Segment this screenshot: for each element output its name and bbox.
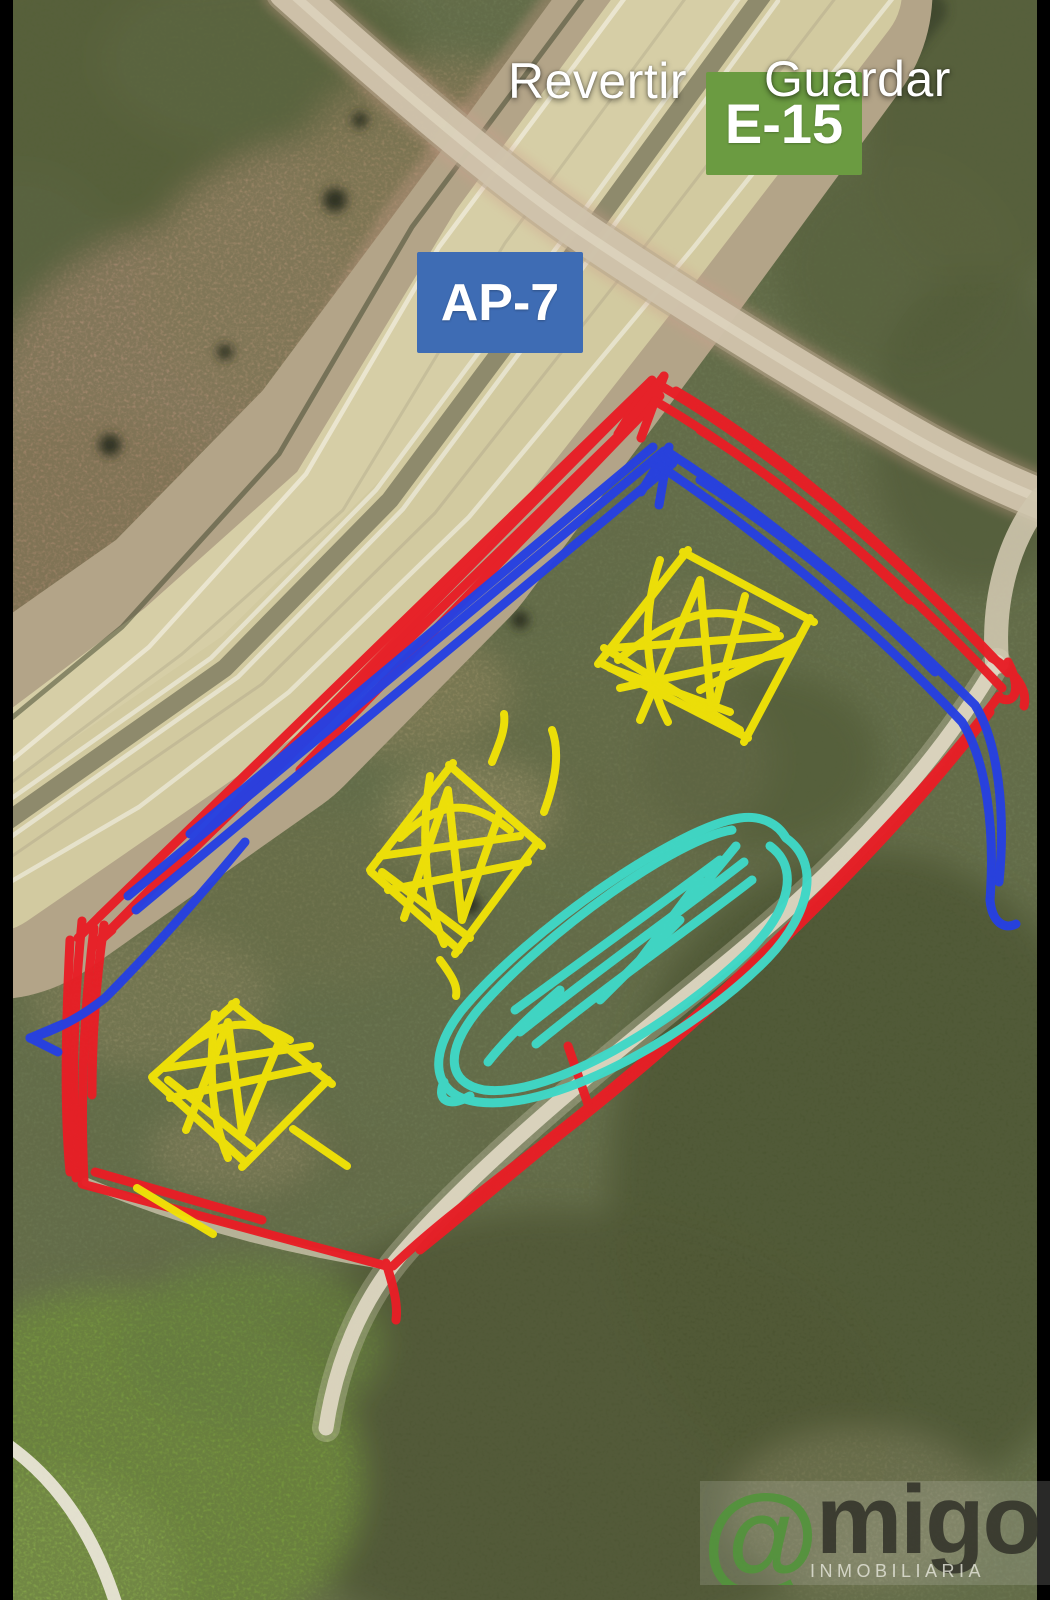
ap7-road-badge-label: AP-7 (441, 273, 559, 333)
map-annotation-screen: E-15 AP-7 Revertir Guardar @ migo INMOBI… (0, 0, 1050, 1600)
save-button[interactable]: Guardar (764, 50, 951, 108)
left-letterbox-bar (0, 0, 13, 1600)
watermark-subtitle: INMOBILIARIA (810, 1561, 985, 1582)
watermark-name: migo (816, 1481, 1040, 1571)
map-satellite-canvas[interactable] (0, 0, 1050, 1600)
revert-button[interactable]: Revertir (508, 52, 687, 110)
right-letterbox-bar (1037, 0, 1050, 1600)
ap7-road-badge: AP-7 (417, 252, 583, 353)
agency-watermark: @ migo INMOBILIARIA (700, 1481, 1050, 1585)
watermark-at-icon: @ (702, 1481, 819, 1585)
